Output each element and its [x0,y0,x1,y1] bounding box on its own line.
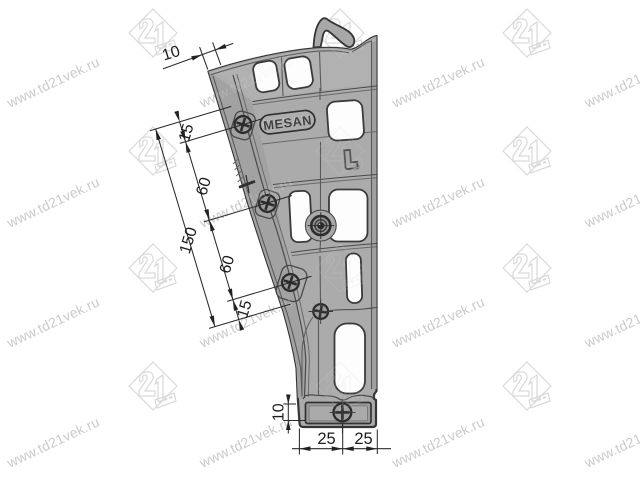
svg-text:10: 10 [271,403,288,421]
svg-text:25: 25 [317,430,335,448]
svg-text:25: 25 [354,430,372,448]
